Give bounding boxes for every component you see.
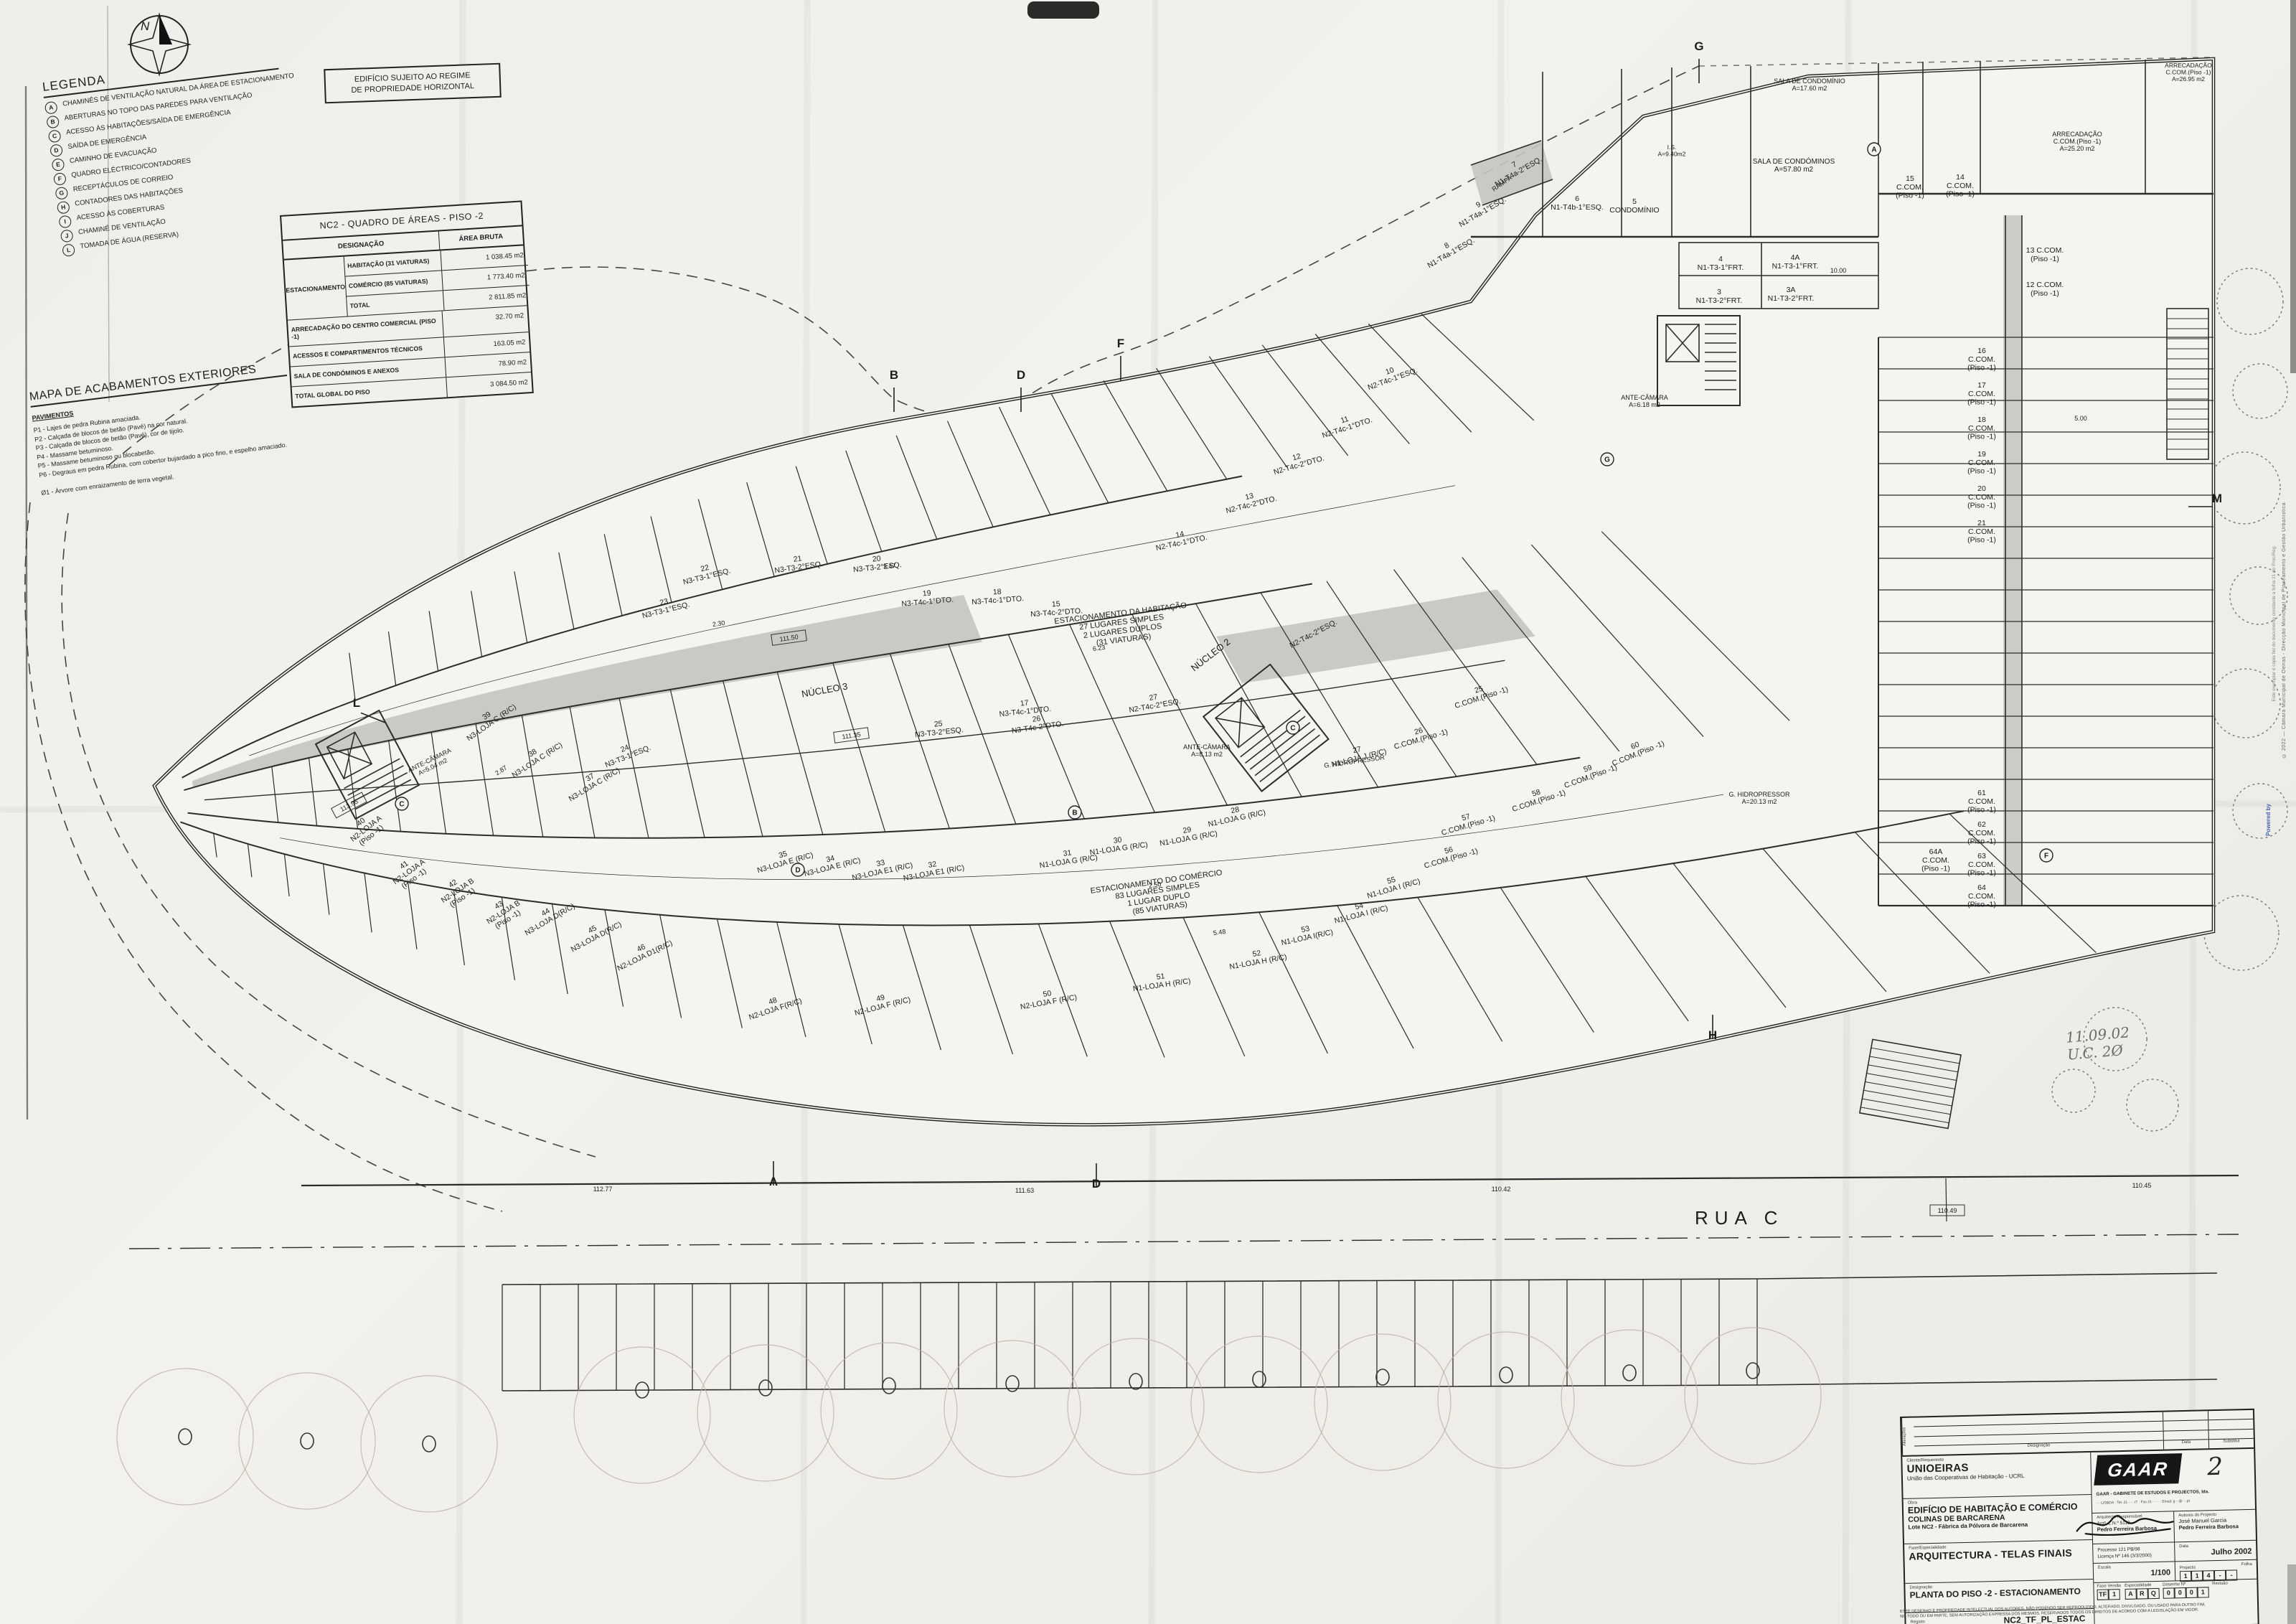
circled-ref: B: [1072, 809, 1077, 817]
group-estacionamento: ESTACIONAMENTO: [284, 257, 348, 320]
corridor-band-right: [2003, 215, 2022, 906]
dim-label: 110.45: [2132, 1182, 2152, 1189]
rev-col-alteracoes: Alterações: [1901, 1418, 1914, 1455]
legend-key-icon: J: [60, 229, 74, 243]
street-label: RUA C: [1695, 1207, 1784, 1229]
legend-key-icon: C: [48, 129, 62, 143]
grid-marker: M: [2212, 492, 2222, 505]
drawing-sheet: N: [0, 0, 2296, 1624]
legend-key-icon: F: [53, 172, 67, 186]
circled-ref: D: [795, 867, 800, 875]
dim-label: 3.47: [883, 562, 896, 570]
margin-copy-note: Este exemplar é cópia fiel do documento …: [2272, 545, 2280, 702]
escala-value: 1/100: [2150, 1569, 2170, 1578]
circled-ref: A: [1871, 146, 1876, 154]
plan-label: ARRECADAÇÃOC.COM.(Piso -1)A=25.20 m2: [2052, 131, 2102, 152]
legend-key-icon: D: [50, 144, 63, 157]
circled-ref: G: [1604, 456, 1610, 464]
dim-label: 112.77: [593, 1186, 613, 1193]
rev-col-data: Data: [2164, 1440, 2208, 1450]
legend-key-icon: E: [52, 158, 65, 172]
legend-key-icon: A: [44, 101, 58, 115]
powered-by-stamp: Powered by: [2265, 804, 2272, 836]
rev-col-substitui: Substitui: [2209, 1439, 2254, 1449]
legend-key-icon: I: [58, 215, 72, 229]
autor-2: Pedro Ferreira Barbosa: [2179, 1523, 2239, 1531]
folha-label: Folha: [2241, 1562, 2252, 1567]
grid-marker: L: [353, 696, 360, 710]
row-value: 32.70 m2: [443, 306, 529, 337]
exterior-stair: [1860, 1039, 1961, 1128]
data-value: Julho 2002: [2211, 1547, 2252, 1557]
plan-label: 13 C.COM.(Piso -1): [2026, 246, 2064, 263]
circled-ref: C: [399, 801, 404, 809]
margin-copyright: © 2022 — Câmara Municipal de Oeiras - Di…: [2282, 502, 2292, 758]
logo-firm-address: ··· LISBOA · Tel. 21······/7 · Fax 21···…: [2097, 1498, 2251, 1506]
horizontal-property-note: EDIFÍCIO SUJEITO AO REGIME DE PROPRIEDAD…: [324, 63, 502, 104]
dim-label: 110.49: [1938, 1207, 1957, 1214]
handwritten-sheet-number: 2: [2180, 1452, 2250, 1482]
dim-label: 5.00: [2074, 415, 2087, 422]
revisao-label: Revisão: [2212, 1582, 2228, 1586]
legend-key-icon: B: [46, 116, 60, 129]
areas-table: NC2 - QUADRO DE ÁREAS - PISO -2 DESIGNAÇ…: [280, 200, 534, 408]
fase-cells-label: Fase Versão: [2097, 1584, 2121, 1589]
grid-marker: F: [1117, 337, 1124, 350]
circled-ref: C: [1290, 725, 1295, 733]
grid-marker: D: [1017, 368, 1025, 382]
processo: Processo 121 PB/98: [2097, 1546, 2140, 1552]
street-trees: [117, 1328, 1821, 1512]
grid-marker: B: [890, 368, 898, 382]
legend-key-icon: H: [57, 201, 70, 215]
handwritten-annotation: 11.09.02 U.C. 2Ø: [2065, 1023, 2132, 1064]
plan-label: 8N1-T4a-1°ESQ.: [1422, 229, 1477, 270]
svg-text:N: N: [141, 19, 150, 33]
plan-label: 12 C.COM.(Piso -1): [2026, 281, 2064, 298]
desenho-cells: 0001: [2163, 1587, 2208, 1598]
dim-label: 10.00: [1830, 267, 1847, 274]
legend-key-icon: G: [55, 187, 68, 200]
esp-label: Especialidade: [2125, 1583, 2159, 1588]
logo-firm-name: GAAR - GABINETE DE ESTUDOS E PROJECTOS, …: [2096, 1488, 2250, 1497]
projecto-label: Projecto: [2180, 1566, 2196, 1570]
client-name: UNIOEIRAS: [1906, 1462, 1968, 1475]
legend-key-icon: L: [62, 243, 75, 257]
row-value: 3 084.50 m2: [447, 372, 532, 397]
circled-ref: F: [2044, 853, 2048, 860]
dim-label: 111.63: [1015, 1187, 1034, 1194]
especialidade-cells: ARQ: [2125, 1588, 2159, 1600]
fase-cells: TF1: [2097, 1589, 2122, 1600]
registo-label: Registo: [1910, 1620, 1924, 1624]
dim-label: 110.42: [1492, 1186, 1511, 1193]
gaar-logo: GAAR: [2094, 1453, 2182, 1485]
signature: [2071, 1507, 2179, 1541]
grid-marker: G: [1694, 39, 1703, 53]
licenca: Licença Nº 146 (3/3/2000): [2097, 1553, 2152, 1559]
title-block: Alterações Designação Data Substitui Cli…: [1900, 1409, 2259, 1624]
